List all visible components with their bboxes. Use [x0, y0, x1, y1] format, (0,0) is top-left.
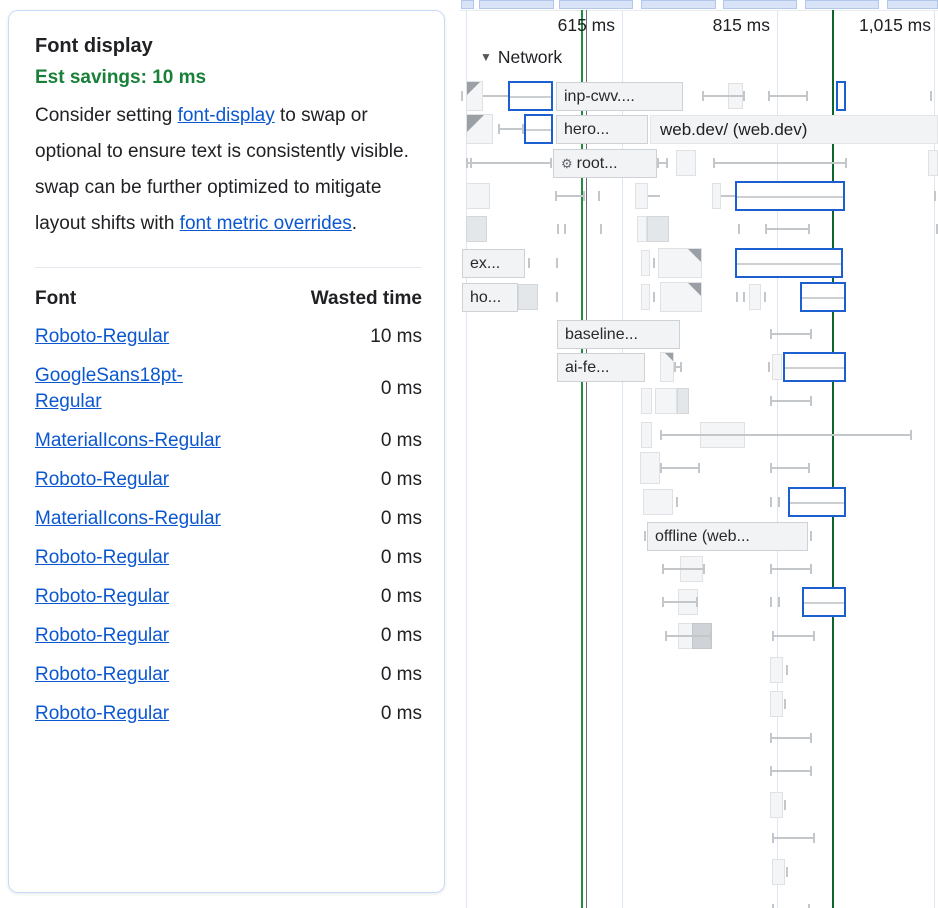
request-label-chip[interactable]: baseline... — [557, 320, 680, 349]
whisker-cap — [662, 564, 664, 574]
font-link[interactable]: Roboto-Regular — [35, 545, 240, 571]
whisker-cap — [770, 463, 772, 473]
request-whisker-line — [713, 162, 847, 164]
whisker-through-line — [804, 602, 844, 604]
request-tick — [738, 224, 740, 234]
highlighted-request-box[interactable] — [836, 81, 846, 111]
highlighted-request-box[interactable] — [783, 352, 846, 382]
request-whisker-line — [665, 635, 712, 637]
font-link[interactable]: Roboto-Regular — [35, 467, 240, 493]
request-whisker-line — [498, 128, 524, 130]
whisker-cap — [810, 766, 812, 776]
request-whisker-line — [772, 837, 815, 839]
trace-marker-line — [581, 10, 583, 908]
request-label-chip[interactable]: hero... — [556, 115, 648, 144]
font-link[interactable]: Roboto-Regular — [35, 324, 240, 350]
description-text: Consider setting — [35, 105, 178, 126]
request-block[interactable] — [518, 284, 538, 310]
request-tick — [784, 800, 786, 810]
folded-corner-icon — [688, 249, 701, 262]
whisker-cap — [810, 396, 812, 406]
request-tick — [653, 258, 655, 268]
highlighted-request-box[interactable] — [800, 282, 846, 312]
request-tick — [784, 699, 786, 709]
font-table-row: Roboto-Regular0 ms — [35, 662, 422, 688]
request-block[interactable] — [641, 284, 650, 310]
time-gridline — [622, 10, 623, 908]
wasted-time-value: 0 ms — [240, 623, 422, 649]
minimap-segment[interactable] — [461, 0, 474, 9]
request-block[interactable] — [466, 183, 490, 209]
request-whisker-line — [770, 737, 812, 739]
whisker-cap — [660, 463, 662, 473]
network-track-label: Network — [498, 47, 562, 67]
request-block[interactable] — [676, 150, 696, 176]
minimap-segment[interactable] — [723, 0, 797, 9]
request-tick — [808, 904, 810, 908]
font-metric-overrides-link[interactable]: font metric overrides — [180, 213, 352, 234]
request-whisker-line — [770, 467, 810, 469]
whisker-cap — [550, 158, 552, 168]
font-link[interactable]: MaterialIcons-Regular — [35, 506, 240, 532]
request-whisker-line — [770, 400, 812, 402]
whisker-through-line — [510, 96, 551, 98]
request-block[interactable] — [635, 183, 648, 209]
time-gridline — [777, 10, 778, 908]
request-tick — [470, 158, 472, 168]
wasted-time-value: 0 ms — [240, 701, 422, 727]
whisker-cap — [713, 158, 715, 168]
minimap-segment[interactable] — [805, 0, 879, 9]
font-table-row: Roboto-Regular10 ms — [35, 324, 422, 350]
wasted-time-value: 0 ms — [240, 545, 422, 571]
request-block[interactable] — [641, 388, 652, 414]
request-tick — [768, 362, 770, 372]
request-label-chip[interactable]: ⚙root... — [553, 149, 657, 178]
font-table-row: Roboto-Regular0 ms — [35, 545, 422, 571]
request-tick — [772, 904, 774, 908]
whisker-cap — [810, 564, 812, 574]
whisker-through-line — [802, 297, 844, 299]
network-track-header[interactable]: ▼Network — [480, 47, 562, 68]
request-tick — [934, 191, 936, 201]
whisker-cap — [808, 463, 810, 473]
whisker-cap — [768, 91, 770, 101]
whisker-cap — [698, 463, 700, 473]
request-tick — [810, 531, 812, 541]
request-tick — [556, 292, 558, 302]
whisker-through-line — [737, 263, 841, 265]
ruler-time-label: 815 ms — [650, 15, 770, 36]
whisker-cap — [765, 224, 767, 234]
performance-timeline-panel[interactable]: ▼Network 615 ms815 ms1,015 msinp-cwv....… — [460, 0, 938, 908]
whisker-cap — [498, 124, 500, 134]
whisker-cap — [710, 631, 712, 641]
highlighted-request-box[interactable] — [524, 114, 553, 144]
request-block[interactable] — [712, 183, 721, 209]
request-whisker-line — [702, 95, 745, 97]
whisker-cap — [665, 631, 667, 641]
request-block[interactable] — [749, 284, 761, 310]
whisker-cap — [810, 733, 812, 743]
request-block[interactable] — [647, 216, 669, 242]
wasted-time-value: 10 ms — [240, 324, 422, 350]
time-gridline — [934, 10, 935, 908]
font-table-row: Roboto-Regular0 ms — [35, 467, 422, 493]
collapse-triangle-icon[interactable]: ▼ — [480, 50, 492, 64]
whisker-cap — [680, 362, 682, 372]
request-block[interactable] — [655, 388, 677, 414]
clipped-request-block[interactable] — [660, 352, 674, 382]
font-link[interactable]: Roboto-Regular — [35, 584, 240, 610]
request-block[interactable] — [641, 250, 650, 276]
wasted-time-value: 0 ms — [240, 506, 422, 532]
request-tick — [528, 258, 530, 268]
request-block[interactable] — [643, 489, 673, 515]
whisker-cap — [772, 833, 774, 843]
estimated-savings: Est savings: 10 ms — [35, 67, 422, 89]
whisker-through-line — [785, 367, 844, 369]
request-block[interactable] — [640, 452, 660, 484]
request-tick — [930, 91, 932, 101]
whisker-cap — [696, 597, 698, 607]
request-tick — [653, 292, 655, 302]
request-label-chip[interactable]: offline (web... — [647, 522, 808, 551]
font-display-audit-card: Font display Est savings: 10 ms Consider… — [8, 10, 445, 893]
request-whisker-line — [772, 635, 815, 637]
whisker-through-line — [790, 502, 844, 504]
whisker-cap — [662, 597, 664, 607]
whisker-cap — [813, 631, 815, 641]
wasted-time-value: 0 ms — [240, 662, 422, 688]
clipped-request-block[interactable] — [658, 248, 702, 278]
whisker-cap — [770, 564, 772, 574]
font-link[interactable]: GoogleSans18pt-Regular — [35, 363, 240, 415]
request-block[interactable] — [772, 354, 782, 380]
whisker-cap — [770, 396, 772, 406]
request-tick — [736, 292, 738, 302]
whisker-cap — [660, 430, 662, 440]
whisker-cap — [703, 564, 705, 574]
request-whisker-line — [768, 95, 808, 97]
whisker-cap — [810, 329, 812, 339]
folded-corner-icon — [467, 115, 484, 132]
request-tick — [778, 597, 780, 607]
font-link[interactable]: Roboto-Regular — [35, 701, 240, 727]
request-block[interactable] — [770, 657, 783, 683]
minimap-divider — [460, 10, 938, 11]
request-whisker-line — [466, 162, 552, 164]
minimap-segment[interactable] — [479, 0, 554, 9]
request-block[interactable] — [928, 150, 938, 176]
request-tick — [461, 91, 463, 101]
whisker-cap — [666, 158, 668, 168]
request-block[interactable] — [772, 859, 785, 885]
clipped-request-block[interactable] — [466, 114, 493, 144]
audit-title: Font display — [35, 35, 422, 58]
request-whisker-line — [660, 467, 700, 469]
request-block[interactable] — [641, 422, 652, 448]
font-table: Roboto-Regular10 msGoogleSans18pt-Regula… — [35, 324, 422, 727]
request-label-chip[interactable]: ex... — [462, 249, 525, 278]
minimap-segment[interactable] — [559, 0, 633, 9]
font-table-row: Roboto-Regular0 ms — [35, 584, 422, 610]
whisker-through-line — [526, 129, 551, 131]
whisker-cap — [466, 158, 468, 168]
wasted-time-value: 0 ms — [240, 467, 422, 493]
request-tick — [564, 224, 566, 234]
request-block[interactable] — [770, 691, 783, 717]
highlighted-request-box[interactable] — [802, 587, 846, 617]
whisker-cap — [845, 158, 847, 168]
whisker-cap — [910, 430, 912, 440]
request-whisker-line — [483, 95, 508, 97]
request-whisker-line — [765, 228, 810, 230]
folded-corner-icon — [688, 283, 701, 296]
whisker-cap — [674, 362, 676, 372]
clipped-request-block[interactable] — [660, 282, 702, 312]
whisker-cap — [813, 833, 815, 843]
request-whisker-line — [770, 568, 812, 570]
highlighted-request-box[interactable] — [788, 487, 846, 517]
request-label-chip[interactable]: ho... — [462, 283, 518, 312]
ruler-time-label: 1,015 ms — [811, 15, 931, 36]
wasted-time-value: 0 ms — [240, 428, 422, 454]
wasted-time-value: 0 ms — [240, 584, 422, 610]
whisker-cap — [702, 91, 704, 101]
font-link[interactable]: MaterialIcons-Regular — [35, 428, 240, 454]
request-whisker-line — [555, 195, 585, 197]
request-block[interactable] — [466, 216, 487, 242]
request-tick — [743, 292, 745, 302]
request-tick — [598, 191, 600, 201]
whisker-cap — [657, 158, 659, 168]
request-tick — [644, 531, 646, 541]
whisker-cap — [555, 191, 557, 201]
ruler-time-label: 615 ms — [495, 15, 615, 36]
whisker-cap — [806, 91, 808, 101]
wasted-time-value: 0 ms — [240, 376, 422, 402]
folded-corner-icon — [467, 82, 480, 95]
trace-marker-line — [586, 10, 588, 908]
minimap-segment[interactable] — [641, 0, 716, 9]
folded-corner-icon — [665, 353, 673, 361]
request-label-chip[interactable]: inp-cwv.... — [556, 82, 683, 111]
request-tick — [557, 224, 559, 234]
clipped-request-block[interactable] — [466, 81, 483, 111]
request-block[interactable] — [770, 792, 783, 818]
minimap-segment[interactable] — [887, 0, 938, 9]
highlighted-request-box[interactable] — [735, 248, 843, 278]
request-whisker-line — [721, 195, 735, 197]
request-tick — [600, 224, 602, 234]
font-column-header: Font — [35, 288, 311, 310]
whisker-through-line — [737, 196, 843, 198]
description-text: . — [352, 213, 357, 234]
request-whisker-line — [770, 333, 812, 335]
whisker-cap — [770, 733, 772, 743]
request-tick — [676, 497, 678, 507]
request-whisker-line — [770, 770, 812, 772]
request-block[interactable] — [637, 216, 647, 242]
highlighted-request-box[interactable] — [735, 181, 845, 211]
whisker-cap — [808, 224, 810, 234]
request-whisker-line — [648, 195, 660, 197]
request-tick — [770, 497, 772, 507]
request-whisker-line — [662, 601, 698, 603]
font-table-row: GoogleSans18pt-Regular0 ms — [35, 363, 422, 415]
whisker-cap — [772, 631, 774, 641]
screenshot-root: Font display Est savings: 10 ms Consider… — [0, 0, 938, 908]
request-tick — [770, 597, 772, 607]
font-table-row: MaterialIcons-Regular0 ms — [35, 506, 422, 532]
whisker-cap — [770, 766, 772, 776]
request-label-chip[interactable]: ai-fe... — [557, 353, 645, 382]
selected-request-band[interactable]: web.dev/ (web.dev) — [650, 115, 938, 144]
font-table-row: Roboto-Regular0 ms — [35, 623, 422, 649]
highlighted-request-box[interactable] — [508, 81, 553, 111]
request-whisker-line — [660, 434, 912, 436]
gear-icon: ⚙ — [561, 156, 573, 171]
whisker-cap — [583, 191, 585, 201]
font-link[interactable]: Roboto-Regular — [35, 662, 240, 688]
font-link[interactable]: Roboto-Regular — [35, 623, 240, 649]
wasted-time-column-header: Wasted time — [311, 288, 422, 310]
time-gridline — [466, 10, 467, 908]
request-tick — [764, 292, 766, 302]
font-table-row: Roboto-Regular0 ms — [35, 701, 422, 727]
audit-description: Consider setting font-display to swap or… — [35, 98, 422, 242]
whisker-cap — [743, 91, 745, 101]
font-table-row: MaterialIcons-Regular0 ms — [35, 428, 422, 454]
font-table-header: Font Wasted time — [35, 288, 422, 310]
request-tick — [556, 258, 558, 268]
whisker-cap — [770, 329, 772, 339]
font-display-link[interactable]: font-display — [178, 105, 275, 126]
divider — [35, 267, 422, 268]
request-tick — [778, 497, 780, 507]
request-whisker-line — [662, 568, 705, 570]
trace-marker-line — [832, 10, 834, 908]
request-block[interactable] — [677, 388, 689, 414]
request-tick — [786, 665, 788, 675]
request-tick — [786, 867, 788, 877]
